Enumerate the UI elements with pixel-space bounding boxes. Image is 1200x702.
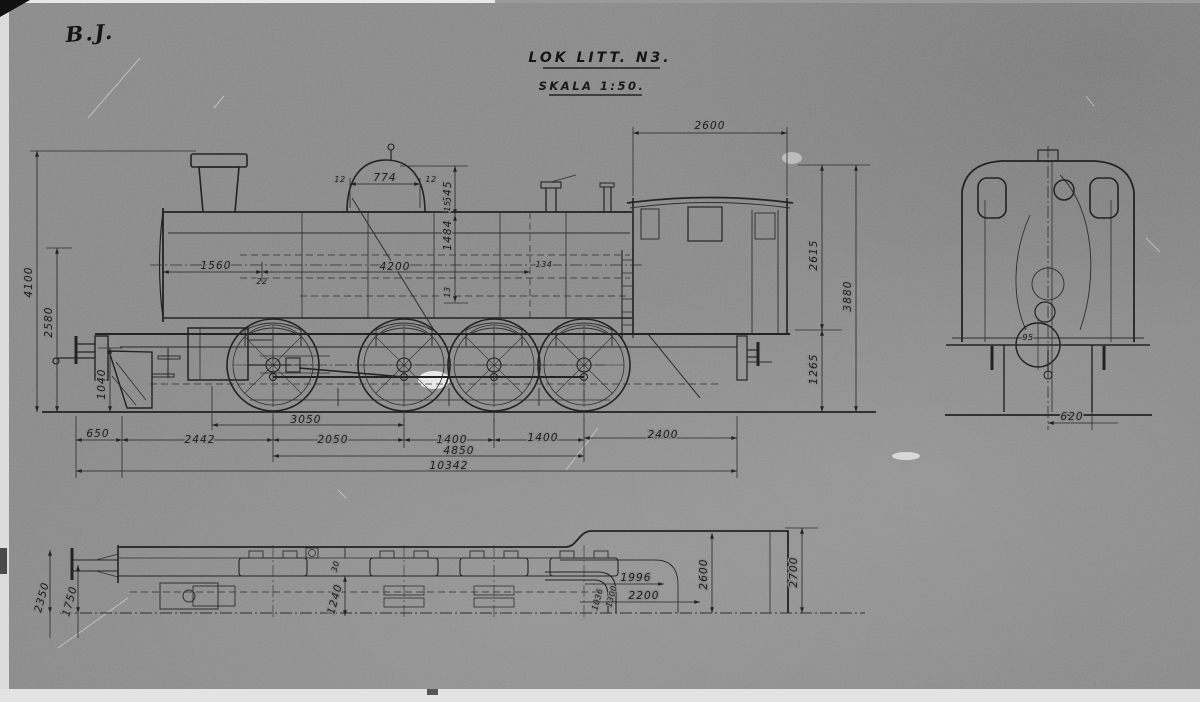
dim-rear-overhang: 2400 (647, 429, 678, 441)
light-patch (782, 152, 802, 164)
dim-small-15: 15 (443, 200, 452, 211)
paint-fleck (892, 452, 920, 460)
dim-plan-overall-width: 2700 (788, 556, 800, 587)
dim-chimney-height: 4100 (23, 266, 35, 297)
dim-cylinder-to-axle2: 3050 (290, 414, 321, 426)
dim-plan-1996: 1996 (620, 572, 651, 584)
dim-overall-height: 3880 (842, 280, 854, 311)
drawing-scale: SKALA 1:50. (539, 79, 646, 93)
dim-front-overhang: 650 (86, 428, 109, 440)
dim-right-upper: 2615 (808, 239, 820, 270)
dim-right-lower: 1265 (808, 353, 820, 384)
corner-initials: B.J. (64, 19, 115, 47)
dim-plan-cab-width: 2600 (698, 558, 710, 589)
dim-dome-height: 645 (442, 180, 454, 203)
dim-total-length: 10342 (430, 460, 469, 472)
dim-dome-right-small: 12 (425, 175, 436, 184)
dim-small-13: 13 (443, 286, 452, 297)
dim-boiler-center-height: 2580 (43, 306, 55, 337)
dim-plan-2200: 2200 (628, 590, 659, 602)
drawing-title: LOK LITT. N3. (528, 50, 671, 66)
locomotive-drawing-photo: B.J. LOK LITT. N3. SKALA 1:50. (0, 0, 1200, 702)
dim-axle3-4: 1400 (527, 432, 558, 444)
dim-buffer-height: 1040 (96, 368, 108, 399)
dim-small-134: 134 (536, 260, 553, 269)
dim-dome-left-small: 12 (334, 175, 345, 184)
dim-boiler-length: 4200 (379, 261, 410, 273)
dim-smokebox: 1560 (200, 260, 231, 272)
dim-axle1-2: 2050 (317, 434, 348, 446)
dim-cab-length: 2600 (694, 120, 725, 132)
dim-buffer-to-axle1: 2442 (184, 434, 215, 446)
blueprint-svg: B.J. LOK LITT. N3. SKALA 1:50. (0, 0, 1200, 702)
dim-cylinder-95: 95 (1022, 333, 1033, 342)
dim-coupled-wheelbase: 4850 (443, 445, 474, 457)
dim-dome-width: 774 (373, 172, 396, 184)
dim-half-width: 620 (1060, 411, 1083, 423)
dim-boiler-depth: 1484 (442, 219, 454, 250)
